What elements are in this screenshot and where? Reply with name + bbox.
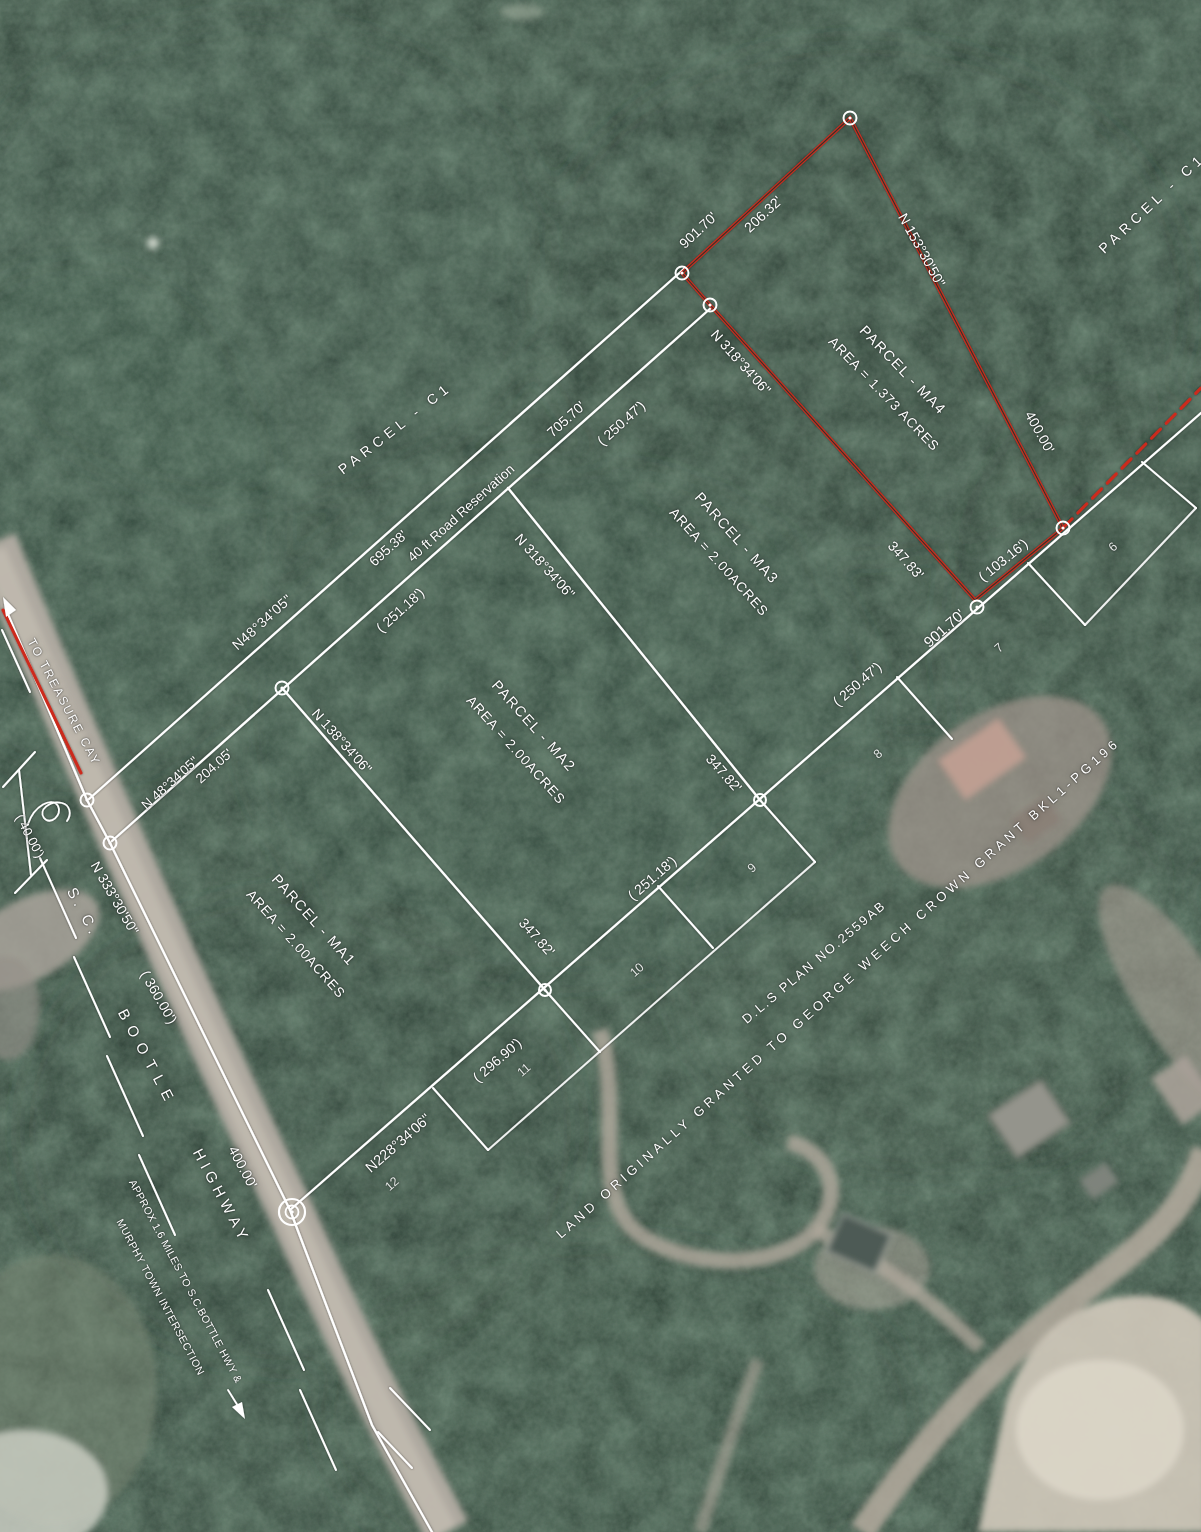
small-clearing-dot (147, 237, 159, 249)
satellite-imagery-and-survey-overlay (0, 0, 1201, 1532)
survey-plan-map: TO TREASURE CAYN48°34'05"695.38'40 ft Ro… (0, 0, 1201, 1532)
